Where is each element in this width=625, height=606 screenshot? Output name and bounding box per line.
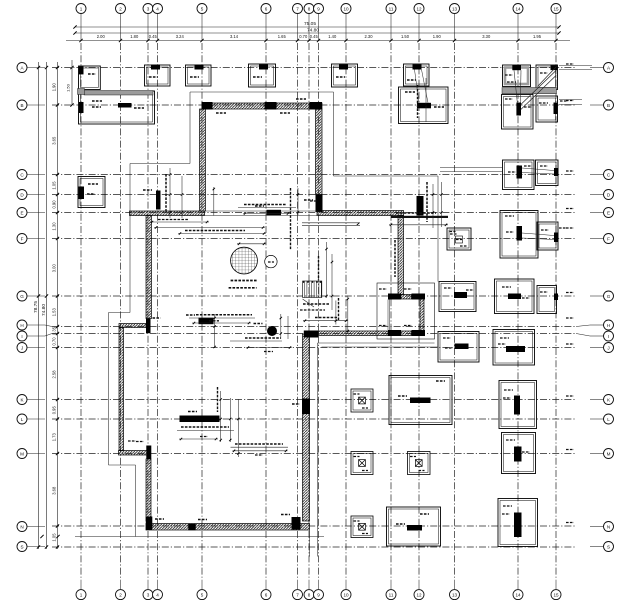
svg-text:7: 7 (296, 7, 299, 12)
svg-text:1.53: 1.53 (51, 308, 56, 317)
svg-text:7: 7 (296, 593, 299, 598)
svg-text:14: 14 (515, 7, 521, 12)
svg-text:H: H (607, 323, 610, 328)
svg-text:2.00: 2.00 (97, 34, 106, 39)
svg-text:6: 6 (265, 7, 268, 12)
svg-text:1.30: 1.30 (51, 222, 56, 231)
svg-text:E: E (607, 211, 610, 216)
svg-text:S: S (607, 545, 610, 550)
svg-text:9: 9 (317, 7, 320, 12)
svg-text:10: 10 (343, 7, 349, 12)
svg-text:3.65: 3.65 (51, 136, 56, 145)
svg-text:1.90: 1.90 (433, 34, 442, 39)
svg-text:3.14: 3.14 (230, 34, 239, 39)
svg-text:15: 15 (553, 7, 559, 12)
svg-text:12: 12 (416, 593, 422, 598)
svg-text:B: B (20, 103, 23, 108)
svg-text:2: 2 (119, 593, 122, 598)
svg-text:1: 1 (80, 593, 83, 598)
svg-text:1.50: 1.50 (401, 34, 410, 39)
svg-text:1.40: 1.40 (328, 34, 337, 39)
svg-text:74.80: 74.80 (41, 304, 47, 316)
svg-text:H: H (20, 323, 23, 328)
svg-text:G: G (20, 294, 24, 299)
svg-text:1.50: 1.50 (66, 83, 71, 92)
svg-text:1.73: 1.73 (51, 433, 56, 442)
svg-text:G: G (607, 294, 611, 299)
svg-text:3.68: 3.68 (51, 486, 56, 495)
svg-text:9: 9 (317, 593, 320, 598)
svg-text:I: I (608, 334, 609, 339)
svg-text:3.24: 3.24 (176, 34, 185, 39)
svg-text:E: E (20, 211, 23, 216)
svg-text:0.95: 0.95 (51, 406, 56, 415)
svg-text:1.95: 1.95 (533, 34, 542, 39)
svg-text:0.35: 0.35 (51, 326, 56, 335)
svg-text:11: 11 (389, 593, 394, 598)
svg-text:4: 4 (156, 7, 159, 12)
svg-text:8: 8 (308, 7, 311, 12)
svg-text:0.70: 0.70 (299, 34, 308, 39)
svg-text:0.70: 0.70 (51, 337, 56, 346)
svg-text:2.30: 2.30 (365, 34, 374, 39)
svg-text:5: 5 (201, 7, 204, 12)
svg-text:13: 13 (452, 593, 458, 598)
svg-text:S: S (20, 545, 23, 550)
svg-text:78.75: 78.75 (33, 301, 39, 313)
svg-text:B: B (607, 103, 610, 108)
svg-text:M: M (20, 452, 24, 457)
svg-text:13: 13 (452, 7, 458, 12)
svg-text:11: 11 (389, 7, 394, 12)
svg-text:1.90: 1.90 (51, 83, 56, 92)
svg-text:10: 10 (343, 593, 349, 598)
svg-text:0.90: 0.90 (51, 200, 56, 209)
svg-text:J: J (21, 346, 23, 351)
svg-text:2: 2 (119, 7, 122, 12)
svg-text:75.05: 75.05 (304, 21, 316, 27)
svg-text:12: 12 (416, 7, 422, 12)
svg-text:N: N (607, 525, 610, 530)
svg-text:F: F (21, 237, 24, 242)
svg-text:4: 4 (156, 593, 159, 598)
svg-text:0.45: 0.45 (149, 34, 158, 39)
svg-text:I: I (21, 334, 22, 339)
svg-text:3: 3 (147, 7, 150, 12)
svg-text:3.30: 3.30 (482, 34, 491, 39)
svg-text:15: 15 (553, 593, 559, 598)
svg-text:5: 5 (201, 593, 204, 598)
svg-text:0.45: 0.45 (310, 34, 319, 39)
svg-text:F: F (607, 237, 610, 242)
svg-text:1.65: 1.65 (278, 34, 287, 39)
svg-text:2.58: 2.58 (51, 370, 56, 379)
svg-text:1.05: 1.05 (51, 533, 56, 542)
svg-text:3: 3 (147, 593, 150, 598)
svg-text:J: J (607, 346, 609, 351)
svg-text:N: N (20, 525, 23, 530)
svg-text:L: L (607, 417, 610, 422)
svg-text:M: M (607, 452, 611, 457)
svg-text:L: L (21, 417, 24, 422)
svg-text:1: 1 (80, 7, 83, 12)
svg-text:3.00: 3.00 (51, 264, 56, 273)
svg-text:14: 14 (515, 593, 521, 598)
svg-text:74.80: 74.80 (307, 28, 319, 34)
svg-text:1.05: 1.05 (51, 181, 56, 190)
svg-text:1.80: 1.80 (130, 34, 139, 39)
svg-text:6: 6 (265, 593, 268, 598)
svg-text:8: 8 (308, 593, 311, 598)
